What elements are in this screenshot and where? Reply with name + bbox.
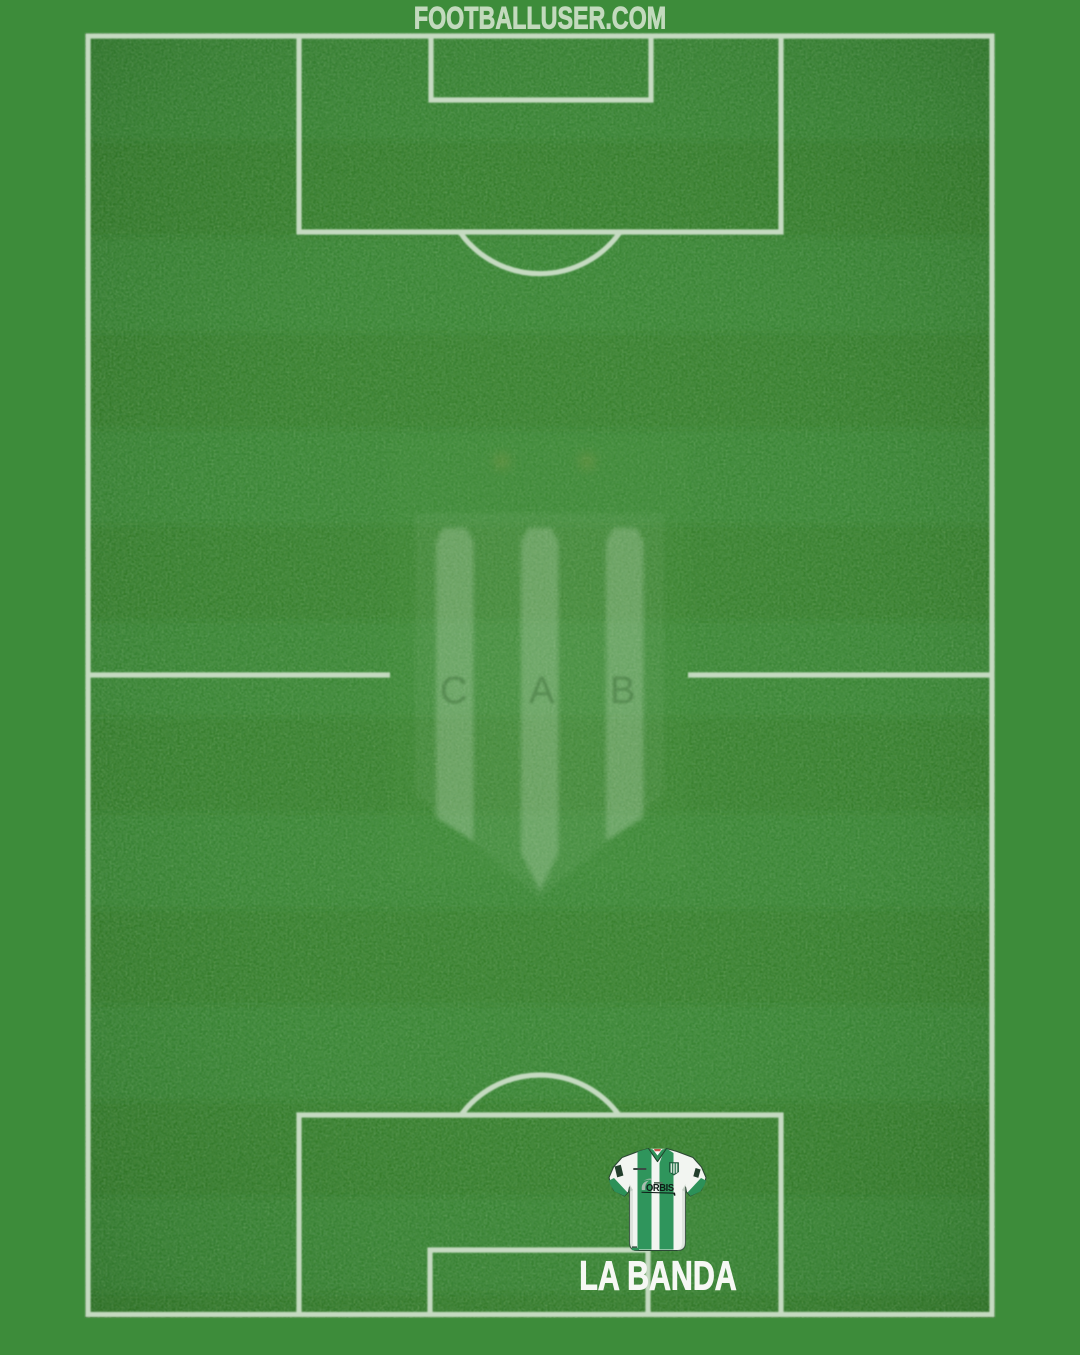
svg-text:C: C xyxy=(440,670,467,712)
svg-text:A: A xyxy=(529,670,555,712)
svg-text:LA BANDA: LA BANDA xyxy=(579,1253,736,1298)
svg-text:FOOTBALLUSER.COM: FOOTBALLUSER.COM xyxy=(414,0,666,35)
svg-text:B: B xyxy=(610,670,635,712)
